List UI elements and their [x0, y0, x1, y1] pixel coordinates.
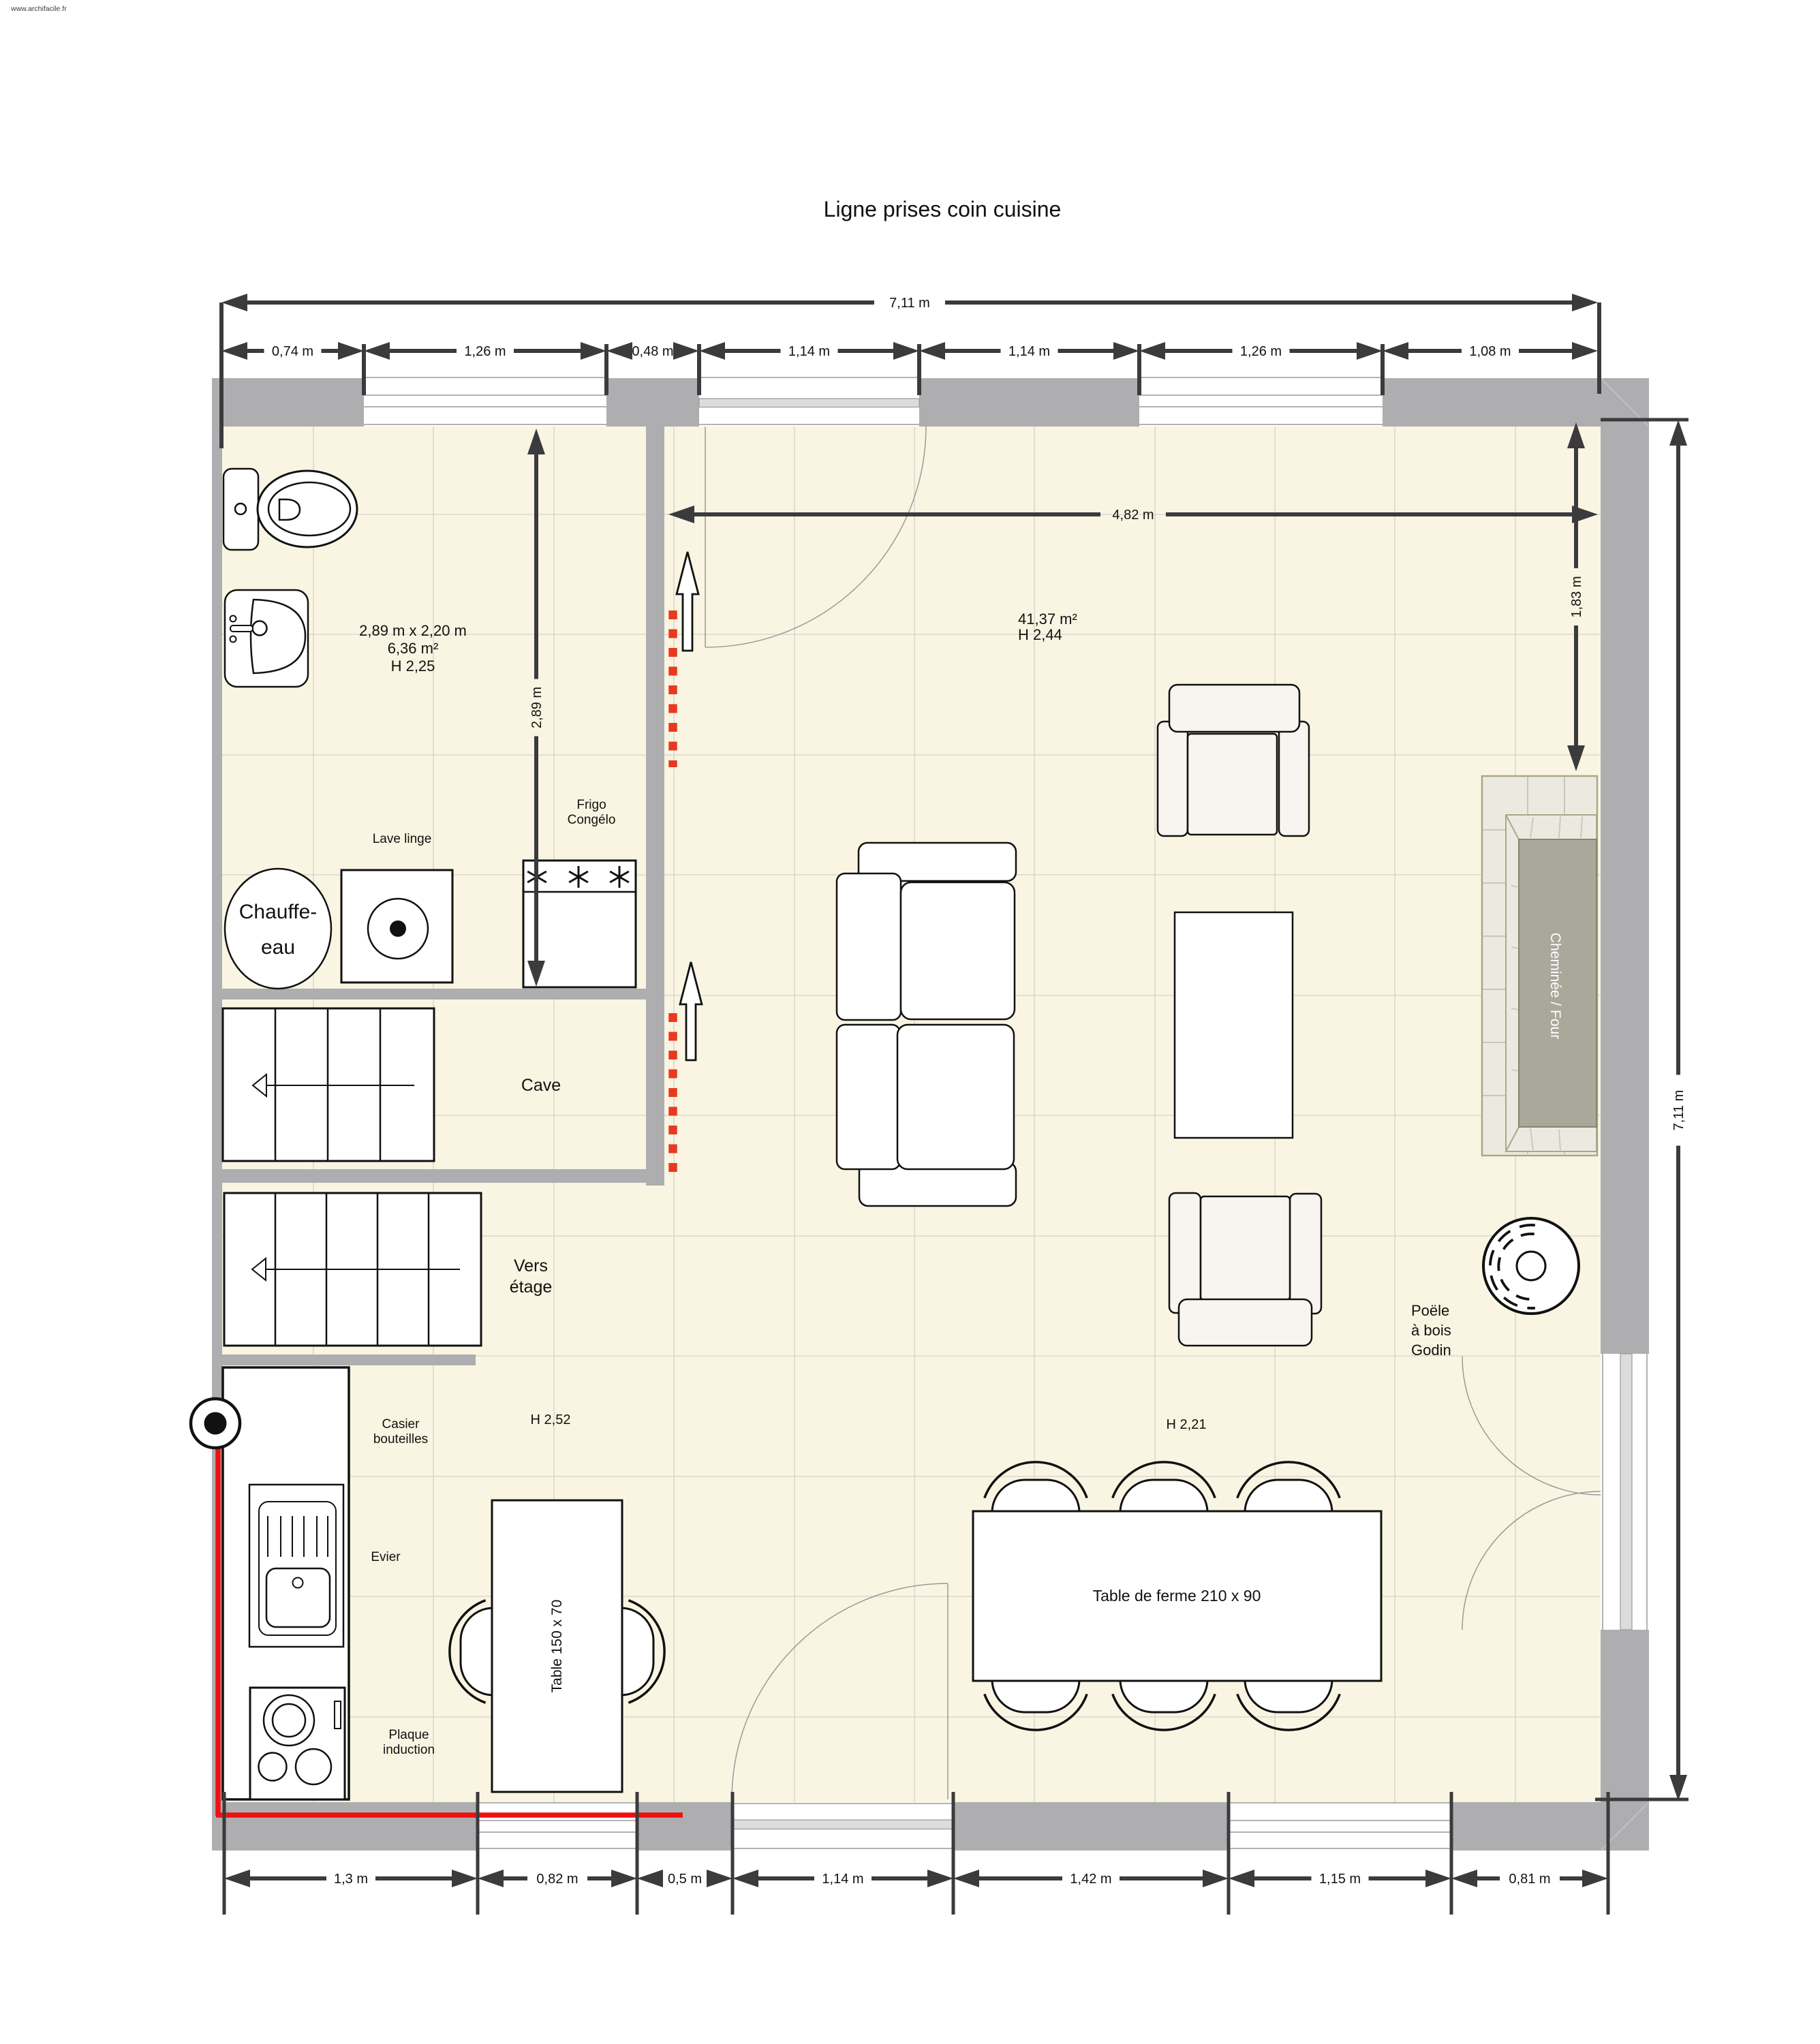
- svg-text:www.archifacile.fr: www.archifacile.fr: [10, 5, 67, 13]
- svg-text:Vers: Vers: [514, 1256, 548, 1275]
- svg-text:Cave: Cave: [521, 1076, 561, 1095]
- svg-text:Plaque: Plaque: [388, 1728, 429, 1742]
- svg-text:1,15 m: 1,15 m: [1319, 1872, 1361, 1887]
- svg-text:6,36 m²: 6,36 m²: [388, 640, 439, 657]
- svg-text:1,08 m: 1,08 m: [1469, 344, 1511, 359]
- svg-text:à bois: à bois: [1411, 1322, 1451, 1339]
- svg-text:H 2,25: H 2,25: [391, 657, 435, 675]
- svg-text:1,14 m: 1,14 m: [1008, 344, 1050, 359]
- svg-text:eau: eau: [261, 936, 295, 959]
- svg-text:Ligne prises coin cuisine: Ligne prises coin cuisine: [824, 197, 1062, 221]
- svg-text:2,89 m x 2,20 m: 2,89 m x 2,20 m: [359, 622, 467, 639]
- svg-text:7,11 m: 7,11 m: [889, 296, 930, 311]
- svg-text:0,5 m: 0,5 m: [668, 1872, 702, 1887]
- svg-text:0,81 m: 0,81 m: [1509, 1872, 1550, 1887]
- svg-text:Table de ferme 210 x 90: Table de ferme 210 x 90: [1093, 1587, 1261, 1605]
- svg-text:0,82 m: 0,82 m: [536, 1872, 578, 1887]
- svg-text:Cheminée / Four: Cheminée / Four: [1547, 933, 1563, 1039]
- svg-text:H 2,44: H 2,44: [1018, 626, 1062, 643]
- svg-text:1,14 m: 1,14 m: [822, 1872, 863, 1887]
- svg-text:0,48 m: 0,48 m: [632, 344, 673, 359]
- svg-text:0,74 m: 0,74 m: [272, 344, 313, 359]
- svg-text:Evier: Evier: [371, 1550, 401, 1564]
- svg-text:Godin: Godin: [1411, 1342, 1451, 1359]
- svg-text:étage: étage: [510, 1277, 553, 1297]
- svg-text:H 2,52: H 2,52: [531, 1412, 571, 1427]
- svg-text:Casier: Casier: [382, 1417, 420, 1431]
- svg-text:Table 150 x 70: Table 150 x 70: [549, 1600, 565, 1693]
- svg-text:1,83 m: 1,83 m: [1569, 576, 1584, 617]
- svg-text:Frigo: Frigo: [576, 798, 606, 812]
- svg-text:Chauffe-: Chauffe-: [239, 901, 318, 923]
- svg-text:7,11 m: 7,11 m: [1671, 1090, 1686, 1131]
- svg-text:induction: induction: [383, 1743, 435, 1757]
- svg-text:H 2,21: H 2,21: [1167, 1417, 1207, 1432]
- svg-text:Congélo: Congélo: [568, 813, 616, 827]
- svg-text:41,37 m²: 41,37 m²: [1018, 610, 1077, 628]
- svg-text:4,82 m: 4,82 m: [1112, 508, 1154, 523]
- svg-text:bouteilles: bouteilles: [373, 1432, 428, 1446]
- svg-text:1,3 m: 1,3 m: [334, 1872, 368, 1887]
- svg-text:2,89 m: 2,89 m: [529, 687, 544, 728]
- svg-text:1,42 m: 1,42 m: [1070, 1872, 1111, 1887]
- svg-text:1,14 m: 1,14 m: [788, 344, 830, 359]
- svg-text:Lave linge: Lave linge: [373, 832, 432, 846]
- svg-text:1,26 m: 1,26 m: [1240, 344, 1282, 359]
- svg-text:1,26 m: 1,26 m: [464, 344, 506, 359]
- svg-text:Poële: Poële: [1411, 1302, 1449, 1319]
